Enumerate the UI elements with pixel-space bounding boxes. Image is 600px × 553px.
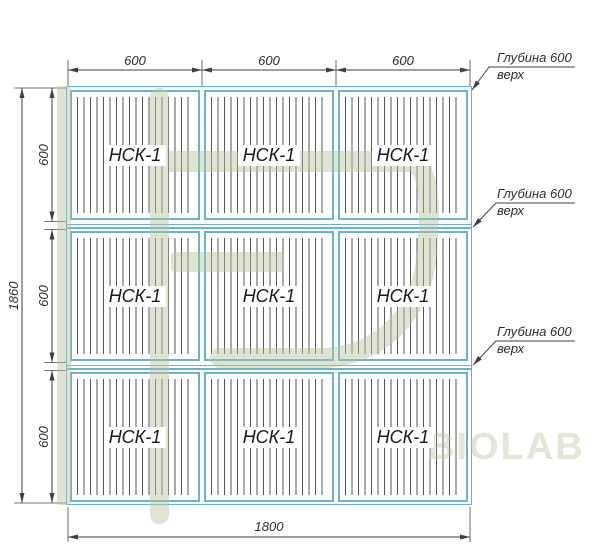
dim-row-3: 600	[36, 425, 51, 447]
callout-2: Глубина 600 верх	[473, 186, 575, 227]
panel-label: НСК-1	[104, 286, 167, 307]
dimension-layer: 600 600 600 600 600 600 1860 1800 Глубин…	[0, 0, 600, 553]
callout-2-line2: верх	[497, 203, 525, 218]
panel-label: НСК-1	[238, 286, 301, 307]
dim-total-width: 1800	[255, 519, 285, 534]
callout-3-line1: Глубина 600	[497, 324, 572, 339]
dimension-bottom: 1800	[68, 519, 470, 537]
panel-label: НСК-1	[104, 427, 167, 448]
dim-total-height: 1860	[6, 281, 21, 311]
dim-top-2: 600	[258, 53, 280, 68]
callout-3-line2: верх	[497, 341, 525, 356]
panel-label: НСК-1	[238, 427, 301, 448]
callout-3: Глубина 600 верх	[473, 324, 575, 365]
callout-1-line2: верх	[497, 67, 525, 82]
dimension-left-rows: 600 600 600	[36, 88, 52, 503]
dimension-top: 600 600 600	[68, 53, 470, 70]
callout-1-line1: Глубина 600	[497, 50, 572, 65]
dim-top-1: 600	[124, 53, 146, 68]
panel-label: НСК-1	[372, 286, 435, 307]
panel-label: НСК-1	[372, 427, 435, 448]
panel-label: НСК-1	[104, 145, 167, 166]
drawing-canvas: НСК-1 НСК-1 НСК-1 НСК-1 НСК-1 НСК-1 НСК-…	[0, 0, 600, 553]
panel-label: НСК-1	[372, 145, 435, 166]
panel-label: НСК-1	[238, 145, 301, 166]
watermark-text: BIOLAB	[427, 426, 585, 468]
dim-top-3: 600	[392, 53, 414, 68]
dimension-left-total: 1860	[6, 88, 22, 503]
callout-1: Глубина 600 верх	[472, 50, 575, 90]
dim-row-1: 600	[36, 143, 51, 165]
dim-row-2: 600	[36, 284, 51, 306]
callout-2-line1: Глубина 600	[497, 186, 572, 201]
